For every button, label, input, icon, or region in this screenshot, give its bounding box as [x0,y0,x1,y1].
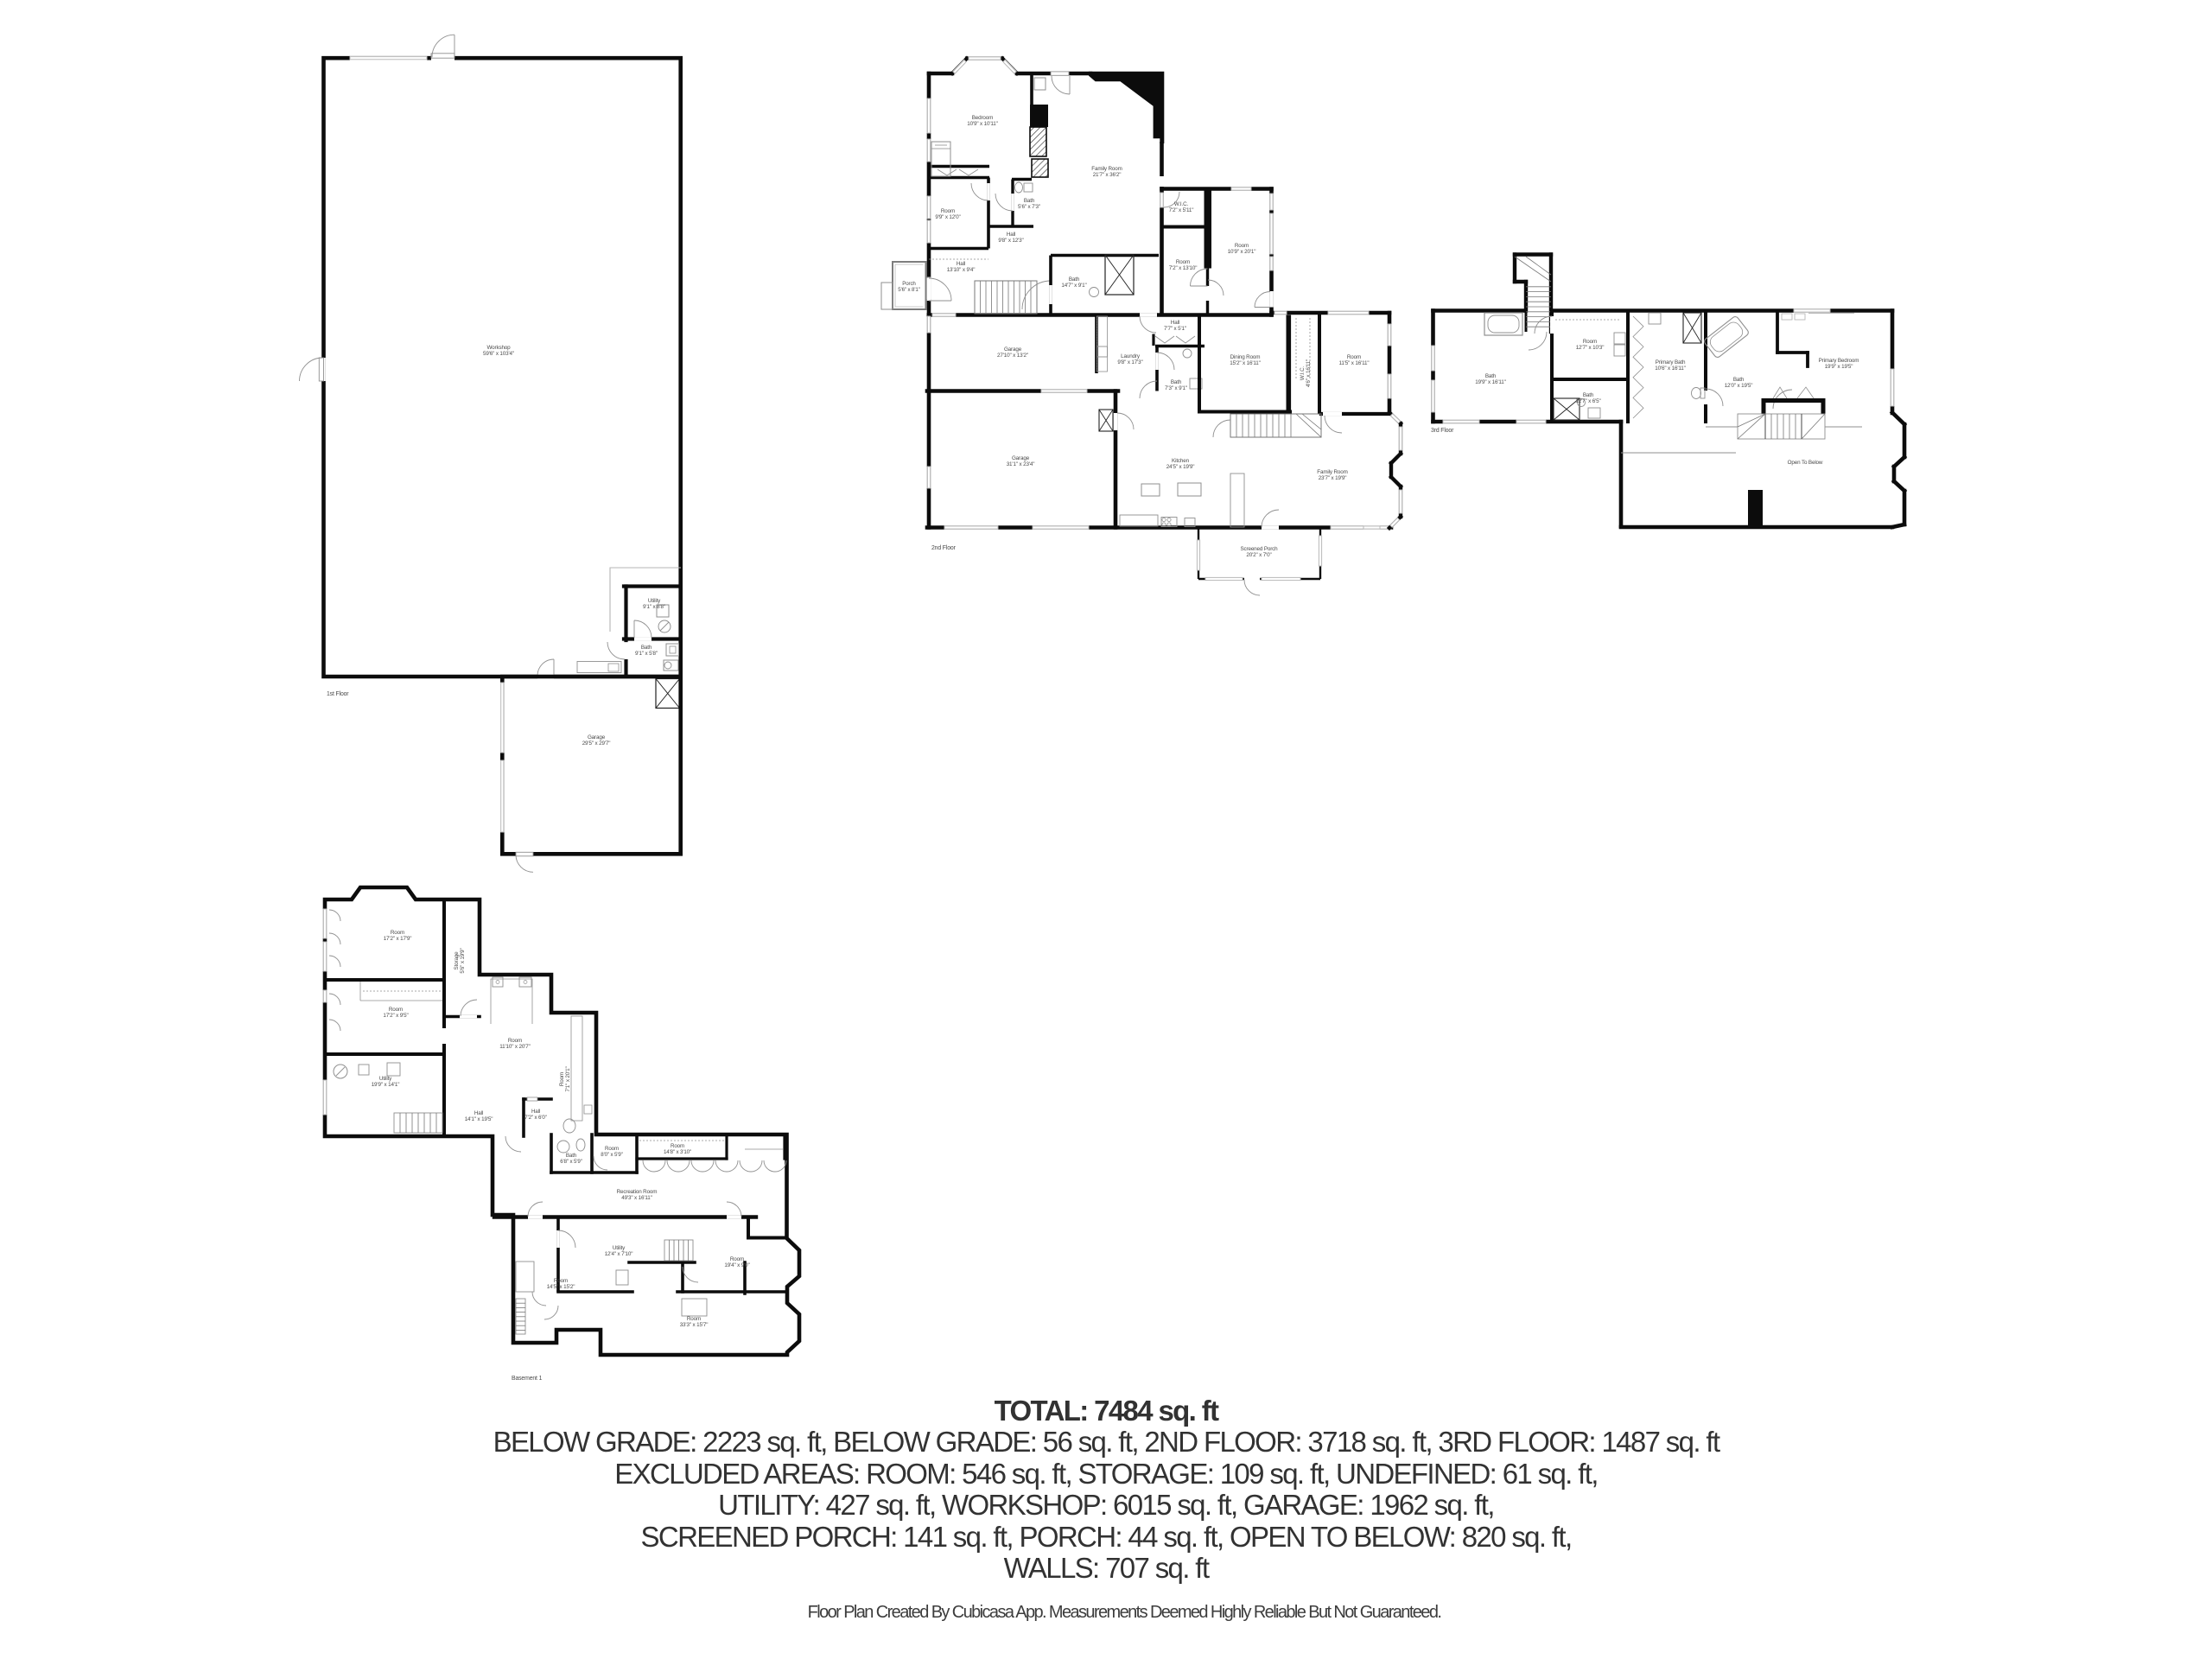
svg-text:Room: Room [508,1038,522,1044]
svg-text:7'2" x 6'0": 7'2" x 6'0" [524,1115,546,1121]
svg-text:Workshop: Workshop [486,345,511,351]
svg-text:14'8" x 3'10": 14'8" x 3'10" [664,1149,691,1155]
svg-text:6'8" x 5'9": 6'8" x 5'9" [560,1159,582,1165]
svg-text:W.I.C.: W.I.C. [1300,365,1306,380]
svg-text:19'9" x 16'11": 19'9" x 16'11" [1475,379,1505,385]
svg-text:Room: Room [559,1072,565,1086]
svg-text:Laundry: Laundry [1121,353,1141,359]
svg-text:Garage: Garage [588,734,606,741]
svg-text:Bath: Bath [1583,392,1594,398]
svg-text:7'7" x 5'1": 7'7" x 5'1" [1164,326,1186,332]
svg-text:Utility: Utility [613,1245,626,1251]
svg-text:5'6" x 7'3": 5'6" x 7'3" [1018,204,1040,210]
svg-text:Basement 1: Basement 1 [512,1376,543,1382]
svg-text:49'3" x 16'11": 49'3" x 16'11" [621,1195,652,1201]
svg-text:14'7" x 9'1": 14'7" x 9'1" [1061,283,1086,289]
svg-text:3rd Floor: 3rd Floor [1431,428,1454,434]
svg-text:Family Room: Family Room [1317,469,1347,475]
svg-text:14'5" x 15'2": 14'5" x 15'2" [547,1284,575,1290]
svg-text:Bath: Bath [1069,276,1080,283]
svg-text:Room: Room [687,1316,701,1322]
svg-text:15'2" x 16'11": 15'2" x 16'11" [1230,360,1260,366]
svg-text:24'5" x 19'9": 24'5" x 19'9" [1166,464,1195,470]
svg-text:Bedroom: Bedroom [972,115,994,121]
svg-text:7'2" x 13'10": 7'2" x 13'10" [1169,265,1198,271]
svg-text:7'3" x 9'1": 7'3" x 9'1" [1165,385,1187,391]
svg-text:27'10" x 13'2": 27'10" x 13'2" [997,353,1028,359]
svg-text:23'7" x 19'9": 23'7" x 19'9" [1319,475,1347,481]
svg-text:10'9" x 10'11": 10'9" x 10'11" [967,121,997,127]
svg-text:2nd Floor: 2nd Floor [931,545,957,551]
svg-text:Family Room: Family Room [1091,166,1122,172]
svg-text:17'2" x 9'5": 17'2" x 9'5" [383,1013,408,1019]
svg-text:Bath: Bath [1024,198,1035,204]
svg-text:Room: Room [605,1146,619,1152]
svg-text:14'1" x 19'5": 14'1" x 19'5" [465,1116,493,1122]
svg-text:12'4" x 7'10": 12'4" x 7'10" [605,1251,633,1257]
svg-text:Garage: Garage [1004,346,1022,353]
svg-text:Porch: Porch [902,281,916,287]
svg-text:7'2" x 5'11": 7'2" x 5'11" [1169,207,1194,213]
svg-text:12'7" x 6'5": 12'7" x 6'5" [1575,398,1600,404]
svg-text:Room: Room [389,1007,403,1013]
svg-text:59'6" x 103'4": 59'6" x 103'4" [483,351,514,357]
svg-text:Room: Room [730,1256,744,1262]
svg-text:5'6" x 8'1": 5'6" x 8'1" [898,287,919,293]
svg-text:Room: Room [391,930,404,936]
svg-text:19'9" x 19'5": 19'9" x 19'5" [1825,364,1853,370]
svg-text:31'1" x 23'4": 31'1" x 23'4" [1007,461,1035,467]
svg-text:20'2" x 7'0": 20'2" x 7'0" [1246,552,1271,558]
svg-text:Primary Bedroom: Primary Bedroom [1819,358,1859,364]
svg-text:Garage: Garage [1012,455,1030,461]
svg-text:Room: Room [554,1278,568,1284]
svg-text:13'10" x 9'4": 13'10" x 9'4" [947,267,976,273]
svg-text:Utility: Utility [648,598,661,604]
svg-text:5'6" x 19'9": 5'6" x 19'9" [460,948,466,973]
svg-text:12'7" x 10'3": 12'7" x 10'3" [1576,345,1605,351]
svg-text:33'3" x 15'7": 33'3" x 15'7" [680,1322,709,1328]
svg-text:Hall: Hall [531,1109,540,1115]
svg-text:9'8" x 12'3": 9'8" x 12'3" [998,238,1023,244]
svg-text:Room: Room [1583,339,1597,345]
svg-text:Room: Room [941,208,955,214]
svg-text:Room: Room [1235,243,1249,249]
svg-text:4'6" x 16'11": 4'6" x 16'11" [1306,359,1312,387]
svg-text:Room: Room [671,1143,684,1149]
svg-text:Dining Room: Dining Room [1230,354,1261,360]
svg-text:Hall: Hall [474,1110,483,1116]
svg-text:21'7" x 36'2": 21'7" x 36'2" [1093,172,1122,178]
svg-text:W.I.C.: W.I.C. [1174,201,1189,207]
svg-text:11'10" x 20'7": 11'10" x 20'7" [499,1044,530,1050]
svg-text:Primary Bath: Primary Bath [1656,359,1686,365]
svg-text:9'1" x 5'8": 9'1" x 5'8" [635,651,658,657]
svg-text:Bath: Bath [1485,373,1497,379]
svg-text:Room: Room [1347,354,1361,360]
svg-text:Bath: Bath [566,1153,577,1159]
svg-text:9'9" x 12'0": 9'9" x 12'0" [935,214,960,220]
svg-text:Hall: Hall [1007,232,1015,238]
svg-text:Screened Porch: Screened Porch [1240,546,1278,552]
svg-text:Hall: Hall [1171,320,1179,326]
svg-text:Hall: Hall [957,261,965,267]
svg-text:19'9" x 14'1": 19'9" x 14'1" [372,1082,400,1088]
svg-text:19'4" x 9'0": 19'4" x 9'0" [724,1262,749,1268]
svg-text:Utility: Utility [379,1076,392,1082]
svg-text:Room: Room [1176,259,1190,265]
svg-text:1st Floor: 1st Floor [327,691,349,697]
svg-text:7'1" x 20'1": 7'1" x 20'1" [565,1066,571,1091]
svg-text:12'0" x 19'5": 12'0" x 19'5" [1725,383,1753,389]
svg-text:10'9" x 20'1": 10'9" x 20'1" [1228,249,1256,255]
svg-text:Bath: Bath [1733,377,1745,383]
svg-text:Bath: Bath [1171,379,1182,385]
svg-text:29'5" x 29'7": 29'5" x 29'7" [582,741,611,747]
svg-text:Bath: Bath [641,645,652,651]
svg-text:11'5" x 16'11": 11'5" x 16'11" [1338,360,1369,366]
svg-text:Recreation Room: Recreation Room [617,1189,658,1195]
svg-text:17'2" x 17'9": 17'2" x 17'9" [384,936,412,942]
svg-text:Open To Below: Open To Below [1788,460,1823,466]
svg-text:10'6" x 16'11": 10'6" x 16'11" [1655,365,1685,372]
svg-text:Kitchen: Kitchen [1172,458,1190,464]
svg-text:8'0" x 5'9": 8'0" x 5'9" [601,1152,622,1158]
svg-text:Storage: Storage [454,951,460,970]
svg-text:9'8" x 17'3": 9'8" x 17'3" [1117,359,1142,365]
svg-text:9'1" x 8'8": 9'1" x 8'8" [643,604,665,610]
